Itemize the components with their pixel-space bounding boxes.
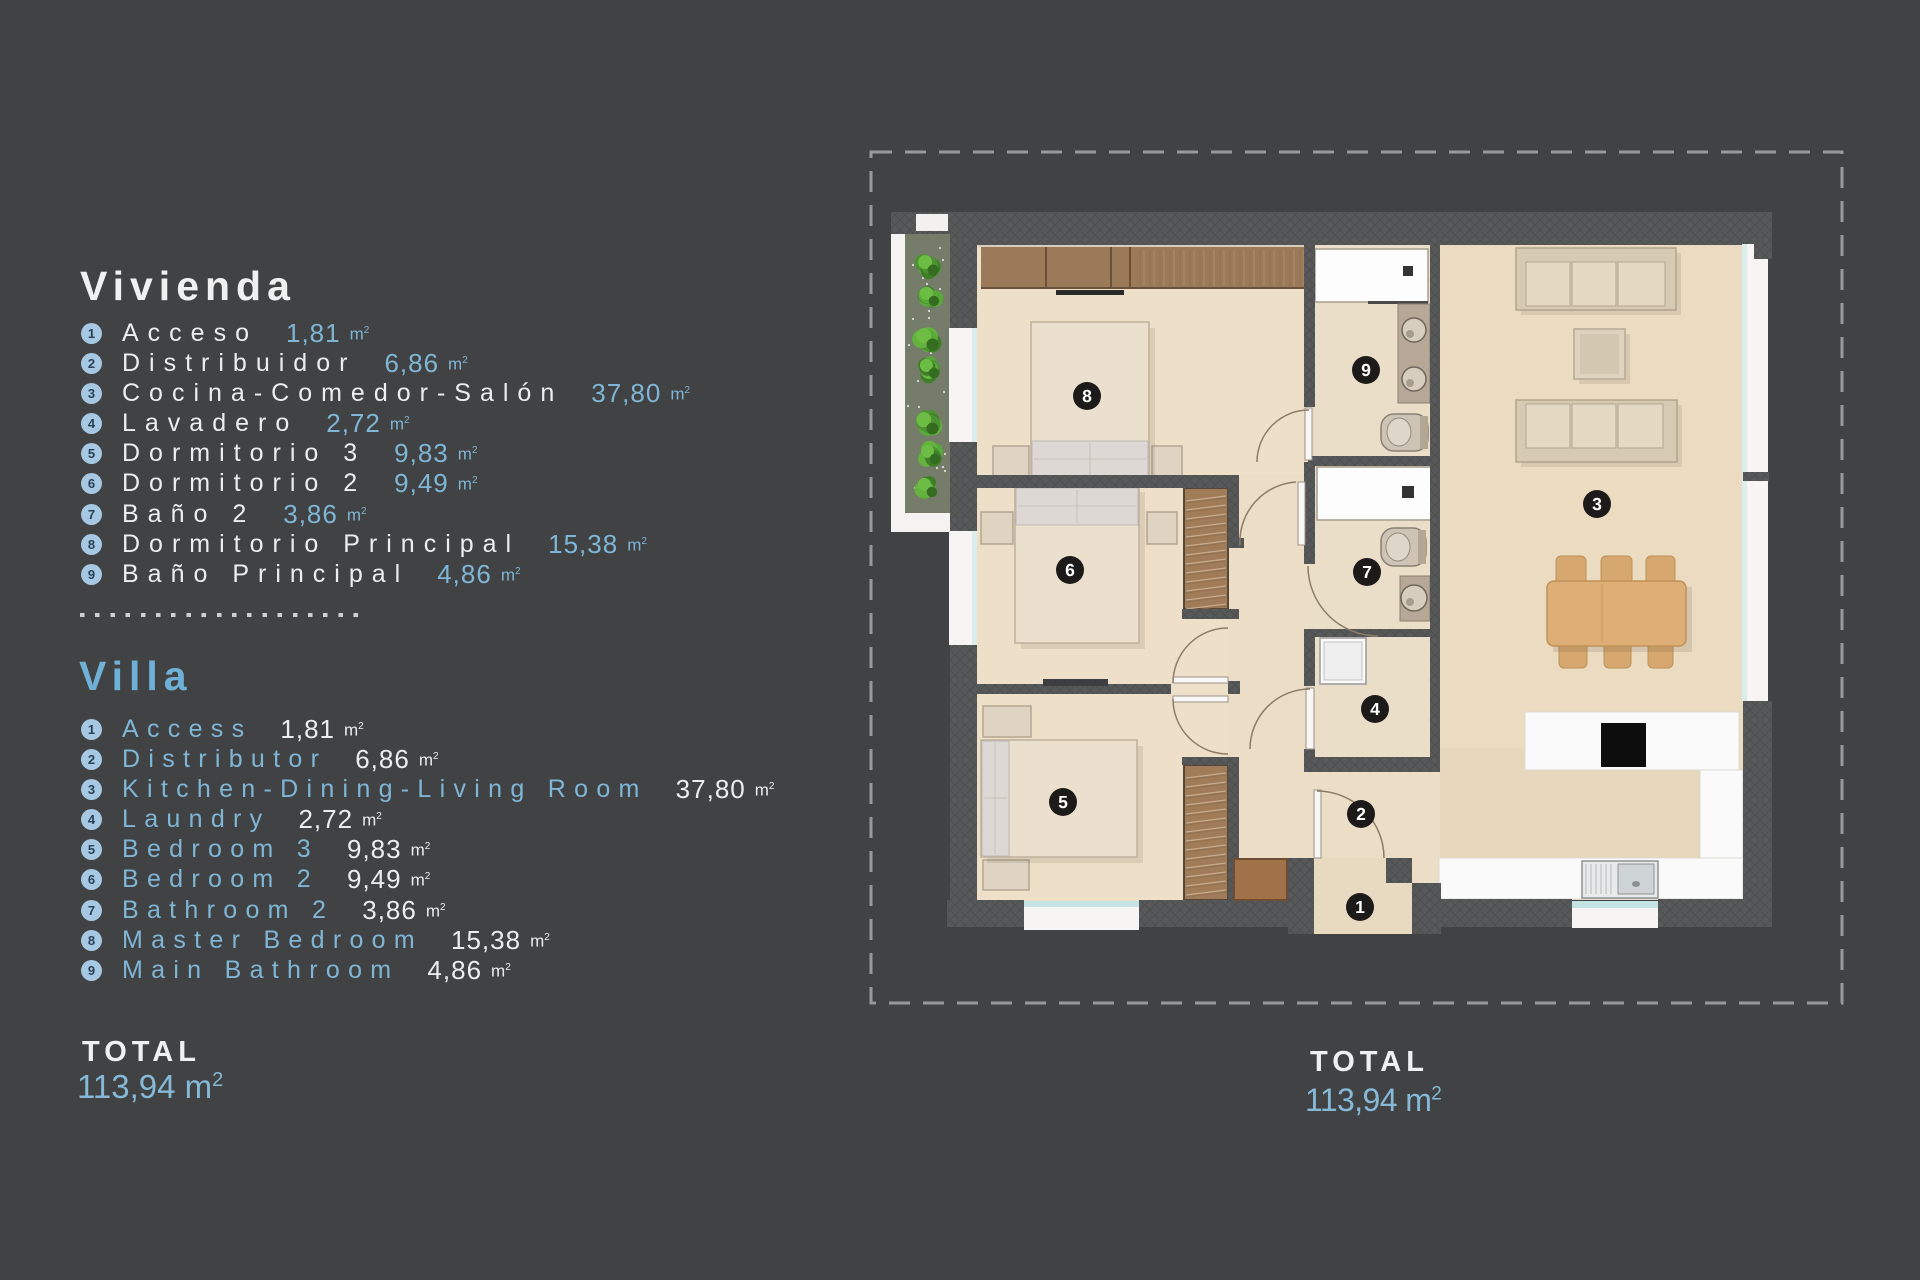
- svg-text:5: 5: [1058, 792, 1068, 812]
- svg-text:7: 7: [1362, 562, 1372, 582]
- svg-text:9: 9: [1361, 360, 1371, 380]
- svg-text:8: 8: [1082, 386, 1092, 406]
- svg-text:3: 3: [1592, 494, 1602, 514]
- svg-text:1: 1: [1355, 897, 1365, 917]
- svg-text:2: 2: [1356, 804, 1366, 824]
- svg-text:4: 4: [1370, 699, 1380, 719]
- svg-text:6: 6: [1065, 560, 1075, 580]
